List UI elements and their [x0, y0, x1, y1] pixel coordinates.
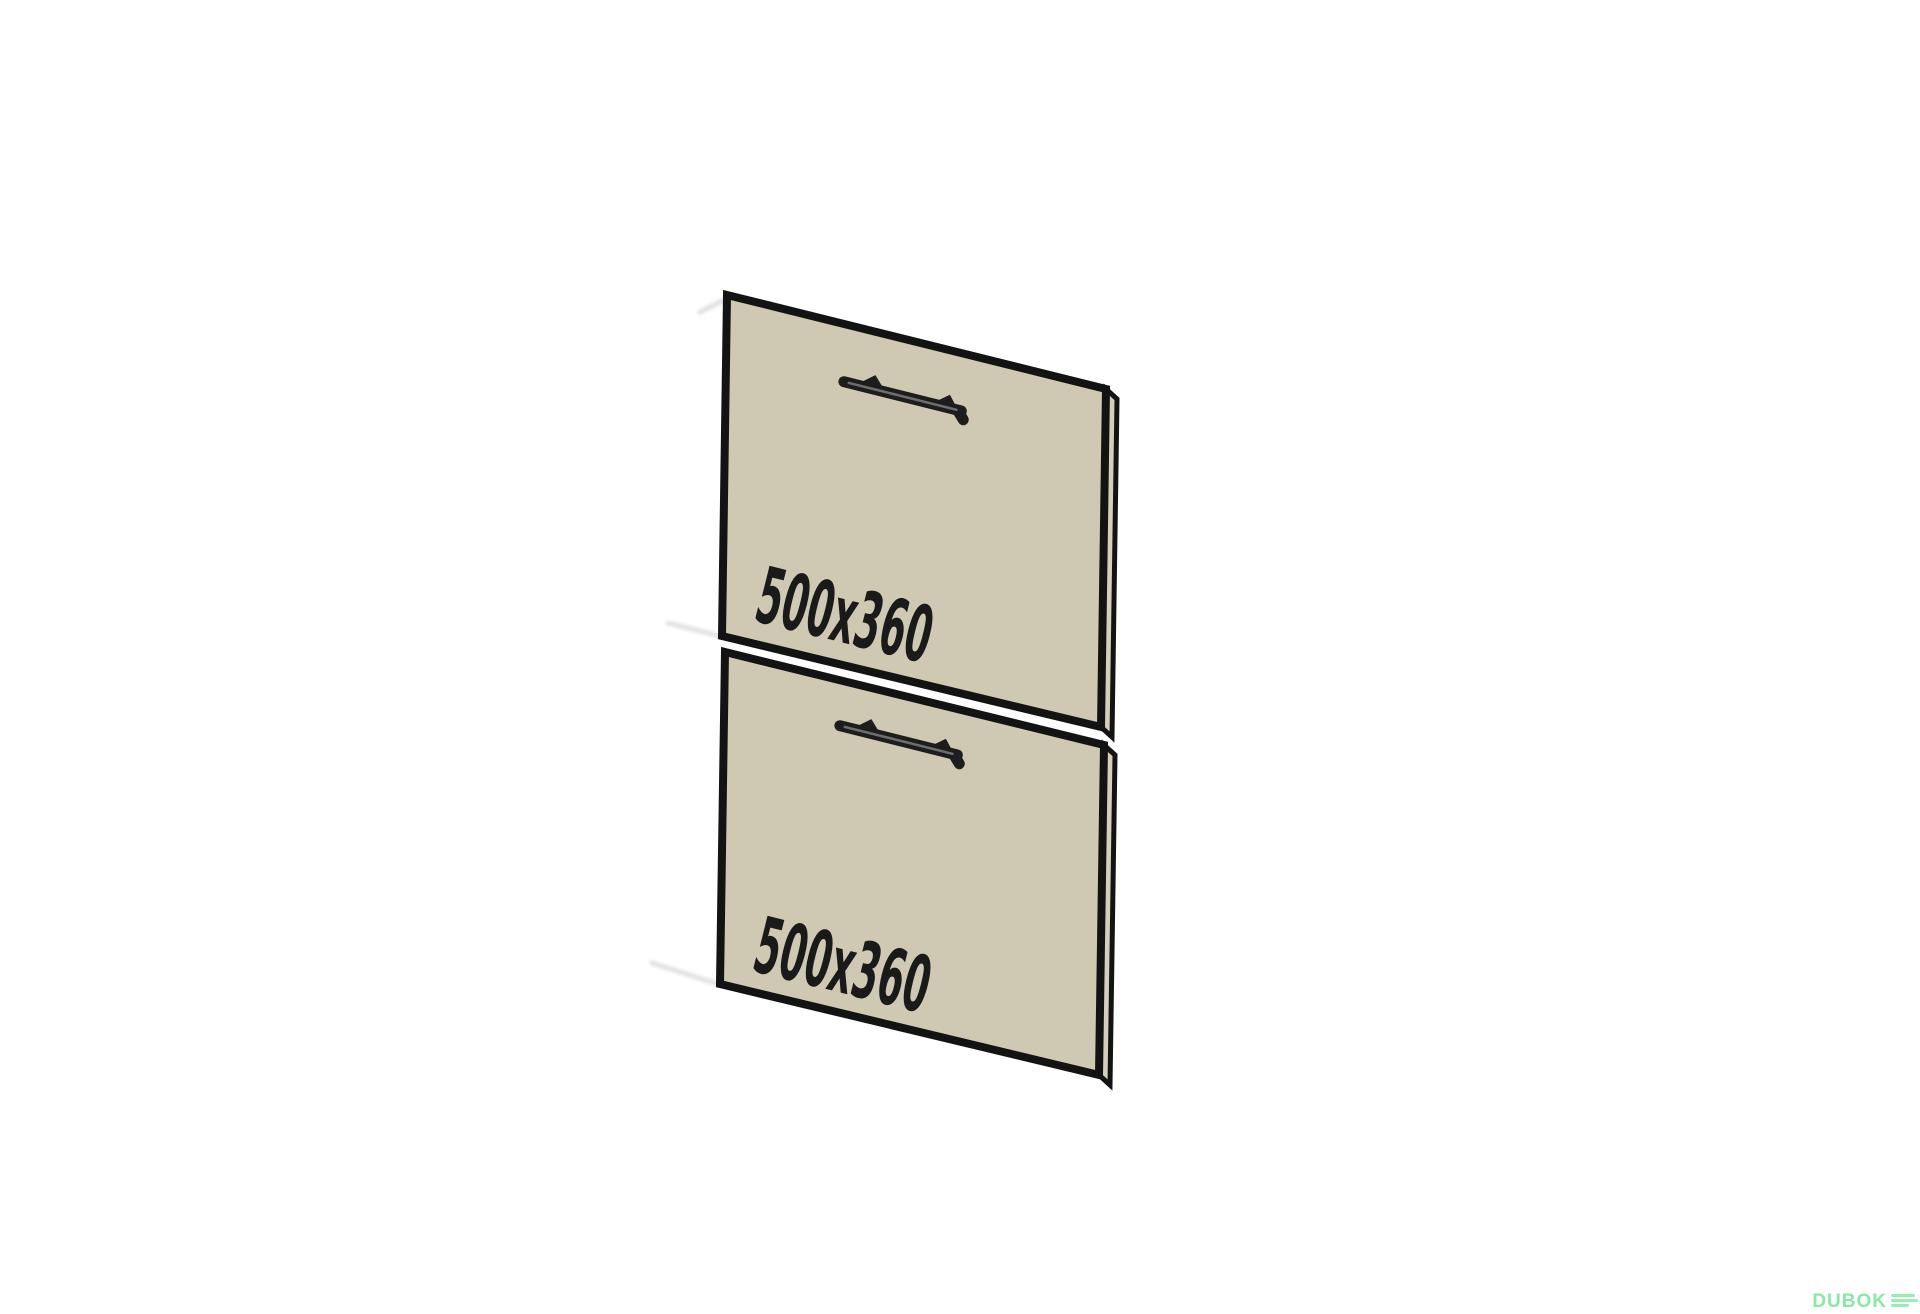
- watermark-logo-text: DUBOK: [1812, 1292, 1887, 1311]
- drawer-fronts-drawing: 500x360 500x360: [0, 0, 1920, 1314]
- watermark: DUBOK: [1812, 1292, 1918, 1311]
- watermark-tagline-bars: [1891, 1292, 1918, 1307]
- product-illustration-canvas: 500x360 500x360 DUBOK: [0, 0, 1920, 1314]
- shadow-smudges: [652, 300, 724, 984]
